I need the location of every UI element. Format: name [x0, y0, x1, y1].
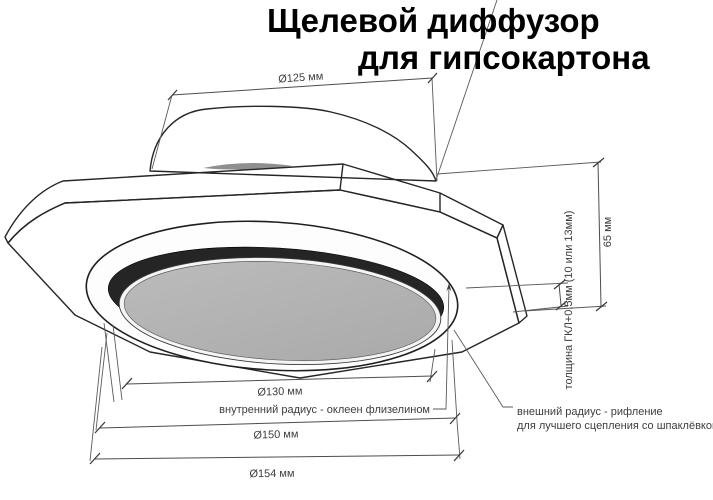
label-height: 65 мм — [602, 217, 614, 247]
label-panel-thickness: толщина ГКЛ+0,5мм (10 или 13мм) — [563, 211, 575, 390]
label-outer-radius-line2: для лучшего сцепления со шпаклёвкой — [517, 420, 713, 432]
drawing-title: Щелевой диффузор для гипсокартона — [0, 2, 713, 76]
label-ring-diameter: Ø150 мм — [253, 428, 298, 441]
dim-height: 65 мм — [437, 158, 614, 311]
annotation-outer-radius: внешний радиус - рифление для лучшего сц… — [454, 330, 713, 432]
label-inner-plate-diameter: Ø130 мм — [257, 385, 302, 398]
label-outer-diameter: Ø154 мм — [249, 468, 294, 481]
dim-panel-thickness: толщина ГКЛ+0,5мм (10 или 13мм) — [466, 211, 575, 390]
drawing-title-line1: Щелевой диффузор — [267, 2, 713, 39]
panel-side-face — [497, 225, 527, 323]
dim-duct-diameter: Ø125 мм — [152, 70, 437, 181]
label-outer-radius-line1: внешний радиус - рифление — [517, 406, 663, 418]
technical-drawing: Ø125 мм 65 мм толщина ГКЛ+0,5мм (10 или … — [0, 0, 713, 500]
drawing-title-line2: для гипсокартона — [358, 39, 713, 76]
label-inner-radius: внутренний радиус - оклеен флизелином — [219, 404, 430, 416]
duct-dome — [150, 106, 436, 181]
panel-top-sliver — [203, 163, 293, 170]
